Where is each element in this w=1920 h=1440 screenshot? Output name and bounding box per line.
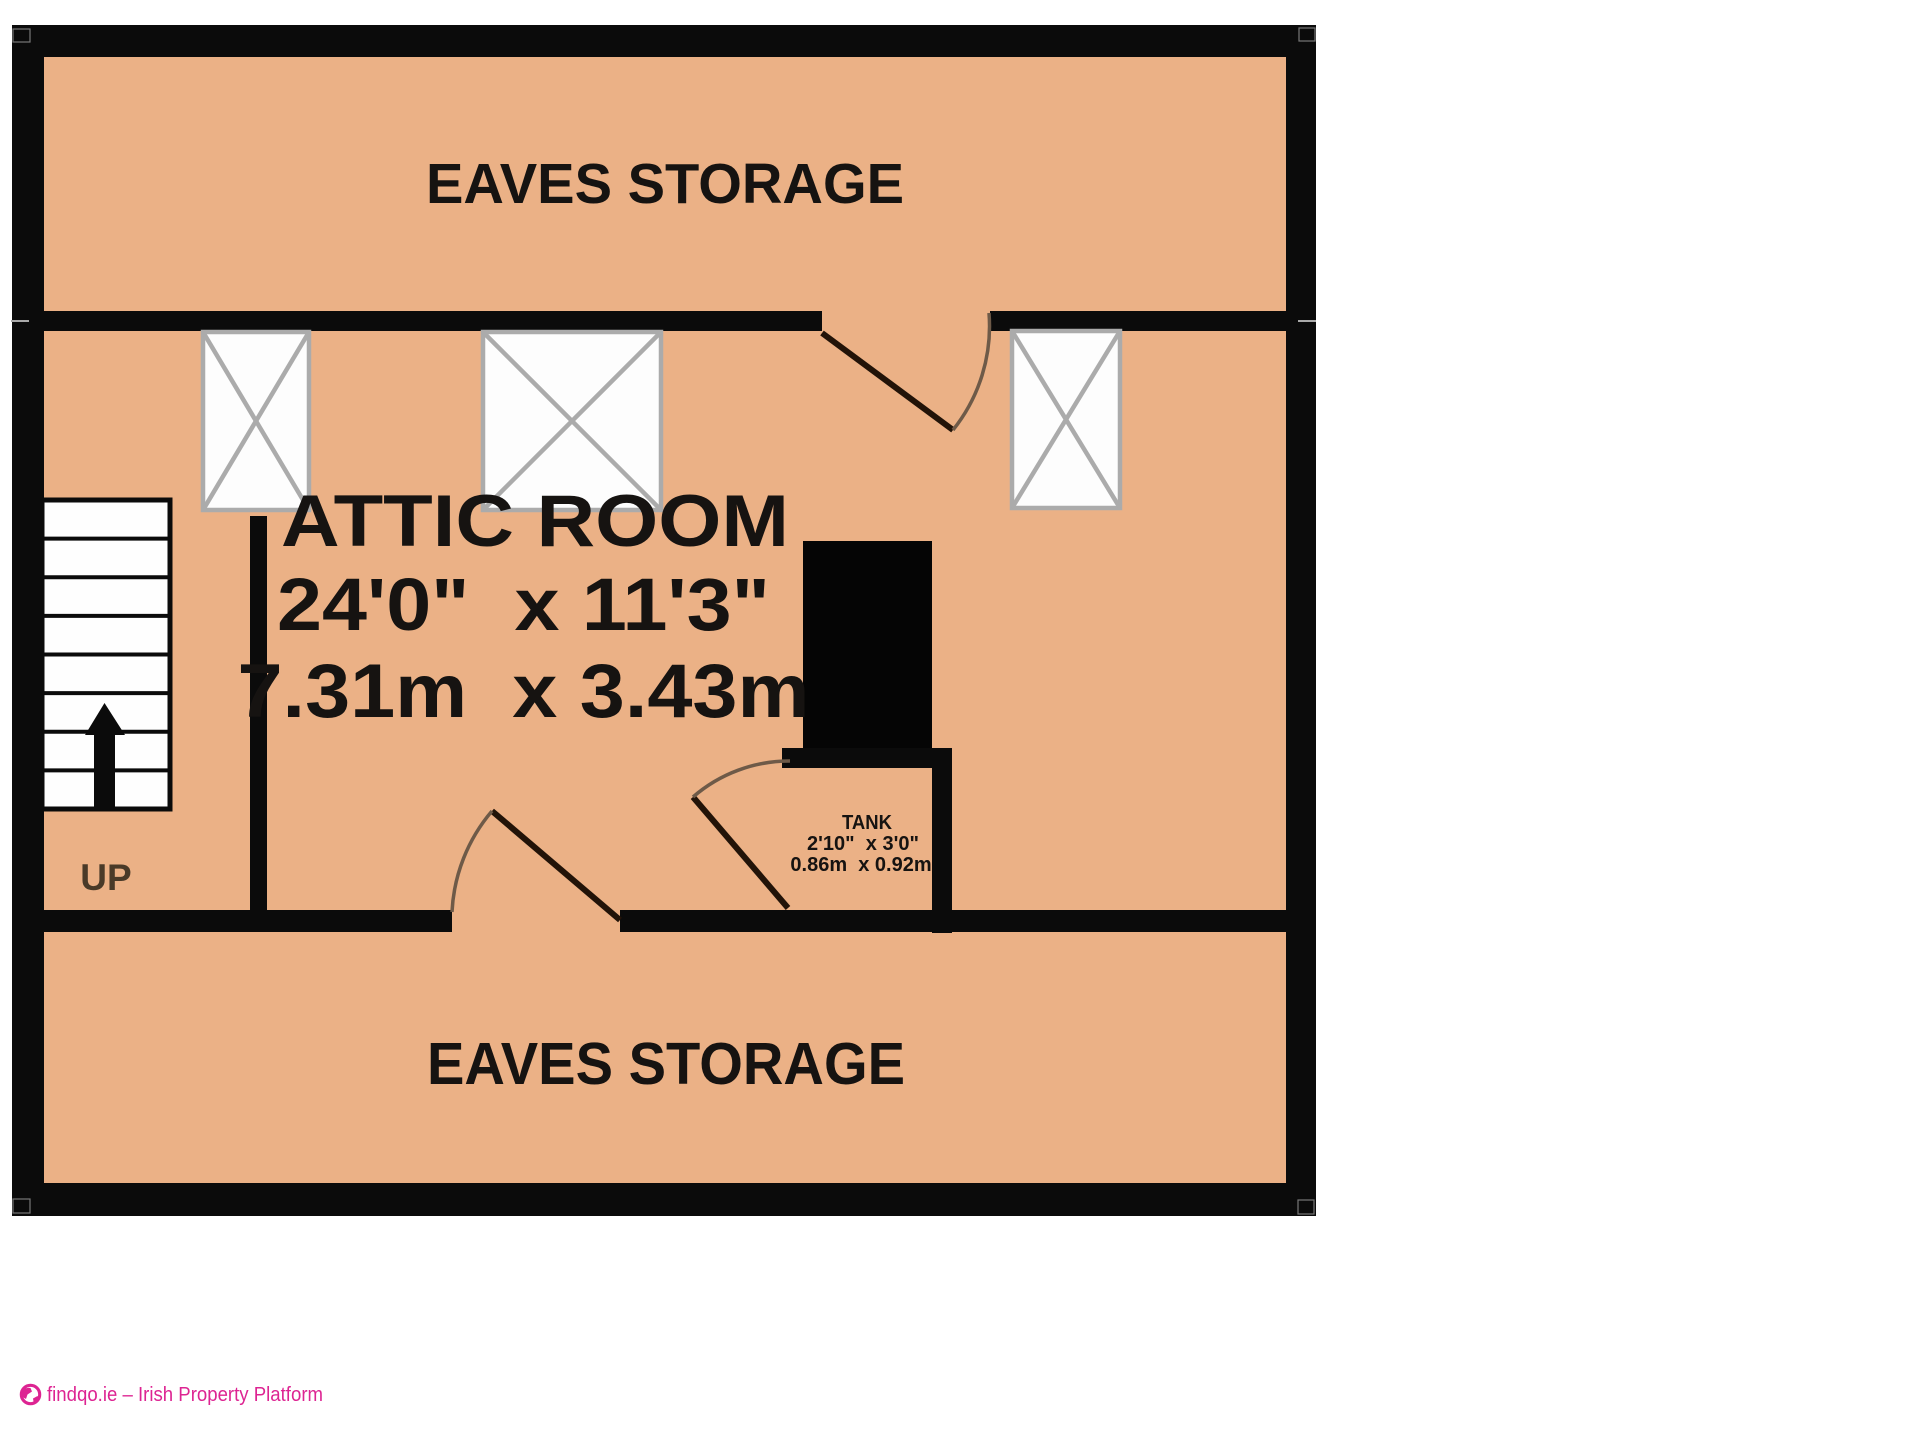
svg-text:0.86m x 0.92m: 0.86m x 0.92m xyxy=(790,854,931,876)
svg-text:TANK: TANK xyxy=(842,812,893,834)
svg-text:UP: UP xyxy=(80,857,131,898)
svg-text:EAVES STORAGE: EAVES STORAGE xyxy=(427,1031,905,1097)
svg-text:7.31m x 3.43m: 7.31m x 3.43m xyxy=(238,649,810,734)
svg-text:24'0" x 11'3": 24'0" x 11'3" xyxy=(277,563,770,646)
svg-text:EAVES STORAGE: EAVES STORAGE xyxy=(426,152,904,216)
svg-text:findqo.ie – Irish Property Pla: findqo.ie – Irish Property Platform xyxy=(47,1384,323,1406)
svg-text:2'10" x 3'0": 2'10" x 3'0" xyxy=(807,833,919,855)
svg-text:ATTIC ROOM: ATTIC ROOM xyxy=(281,481,789,562)
